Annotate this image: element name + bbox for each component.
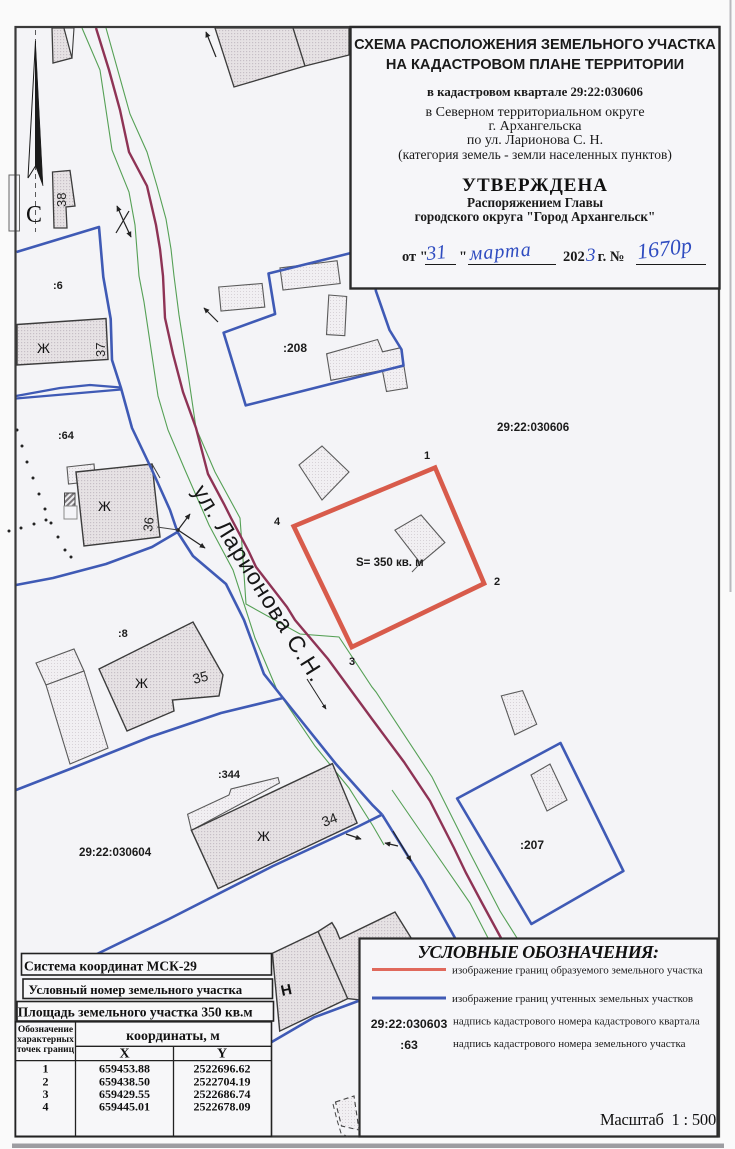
svg-text:29:22:030604: 29:22:030604	[79, 846, 152, 859]
svg-text:координаты, м: координаты, м	[126, 1029, 220, 1044]
svg-text:4: 4	[43, 1099, 49, 1113]
svg-text:изображение границ учтенных зе: изображение границ учтенных земельных уч…	[452, 993, 693, 1005]
svg-text:НА КАДАСТРОВОМ ПЛАНЕ ТЕРРИТОРИ: НА КАДАСТРОВОМ ПЛАНЕ ТЕРРИТОРИИ	[386, 57, 684, 73]
svg-text:31: 31	[424, 241, 447, 265]
svg-text:Ж: Ж	[135, 675, 148, 691]
svg-text:в кадастровом квартале 29:22:0: в кадастровом квартале 29:22:030606	[427, 85, 644, 99]
svg-text:г. Архангельска: г. Архангельска	[489, 119, 583, 134]
svg-text:марта: марта	[468, 239, 533, 265]
svg-text:Ж: Ж	[98, 498, 111, 514]
svg-text::208: :208	[283, 341, 307, 355]
svg-text:Ж: Ж	[37, 340, 50, 356]
svg-text:659445.01: 659445.01	[99, 1099, 150, 1113]
svg-text::8: :8	[118, 628, 128, 640]
svg-text:по ул. Ларионова С. Н.: по ул. Ларионова С. Н.	[467, 133, 603, 148]
svg-text:2522678.09: 2522678.09	[194, 1099, 251, 1113]
svg-text:Система координат МСК-29: Система координат МСК-29	[24, 959, 197, 974]
svg-text:202: 202	[563, 249, 585, 265]
svg-text:38: 38	[54, 193, 69, 207]
svg-text:1: 1	[424, 450, 430, 462]
svg-text:характерных: характерных	[17, 1035, 74, 1045]
svg-text::6: :6	[53, 280, 63, 292]
svg-text:в Северном территориальном окр: в Северном территориальном округе	[425, 105, 644, 120]
svg-text:29:22:030603: 29:22:030603	[371, 1017, 448, 1031]
svg-text::63: :63	[400, 1038, 418, 1052]
svg-text:изображение границ образуемого: изображение границ образуемого земельног…	[452, 965, 703, 977]
svg-text::344: :344	[218, 769, 241, 781]
svg-text:надпись кадастрового номера ка: надпись кадастрового номера кадастрового…	[453, 1016, 700, 1028]
svg-text:Условный номер земельного учас: Условный номер земельного участка	[29, 983, 243, 997]
svg-text:Y: Y	[217, 1047, 227, 1062]
svg-text:надпись кадастрового номера зе: надпись кадастрового номера земельного у…	[453, 1038, 686, 1050]
svg-text::64: :64	[58, 430, 75, 442]
svg-text:Обозначение: Обозначение	[18, 1024, 73, 1035]
svg-text:3: 3	[585, 245, 596, 266]
svg-text:": "	[459, 249, 467, 265]
svg-text:X: X	[119, 1047, 129, 1062]
svg-text:Масштаб 1 : 500: Масштаб 1 : 500	[600, 1110, 716, 1129]
svg-text:городского округа "Город Архан: городского округа "Город Архангельск"	[415, 209, 656, 224]
svg-text:точек границ: точек границ	[17, 1045, 75, 1055]
svg-text:УСЛОВНЫЕ ОБОЗНАЧЕНИЯ:: УСЛОВНЫЕ ОБОЗНАЧЕНИЯ:	[418, 942, 659, 962]
svg-text:от ": от "	[402, 249, 428, 265]
svg-text:Ж: Ж	[257, 828, 270, 844]
svg-text:(категория земель - земли насе: (категория земель - земли населенных пун…	[398, 147, 672, 162]
svg-text:г. №: г. №	[594, 249, 624, 265]
svg-text:Площадь земельного участка 350: Площадь земельного участка 350 кв.м	[18, 1005, 253, 1020]
svg-text:4: 4	[274, 516, 281, 528]
svg-text:S= 350 кв. м: S= 350 кв. м	[356, 557, 424, 569]
svg-text:Распоряжением Главы: Распоряжением Главы	[467, 195, 603, 210]
svg-text:СХЕМА РАСПОЛОЖЕНИЯ ЗЕМЕЛЬНОГО: СХЕМА РАСПОЛОЖЕНИЯ ЗЕМЕЛЬНОГО УЧАСТКА	[354, 37, 716, 53]
svg-text:С: С	[26, 202, 42, 228]
svg-text:36: 36	[140, 516, 157, 532]
svg-text::207: :207	[520, 838, 544, 852]
svg-text:3: 3	[349, 656, 355, 668]
svg-text:УТВЕРЖДЕНА: УТВЕРЖДЕНА	[462, 175, 608, 196]
svg-text:29:22:030606: 29:22:030606	[497, 421, 570, 434]
svg-text:37: 37	[93, 343, 108, 357]
svg-text:2: 2	[494, 576, 500, 588]
